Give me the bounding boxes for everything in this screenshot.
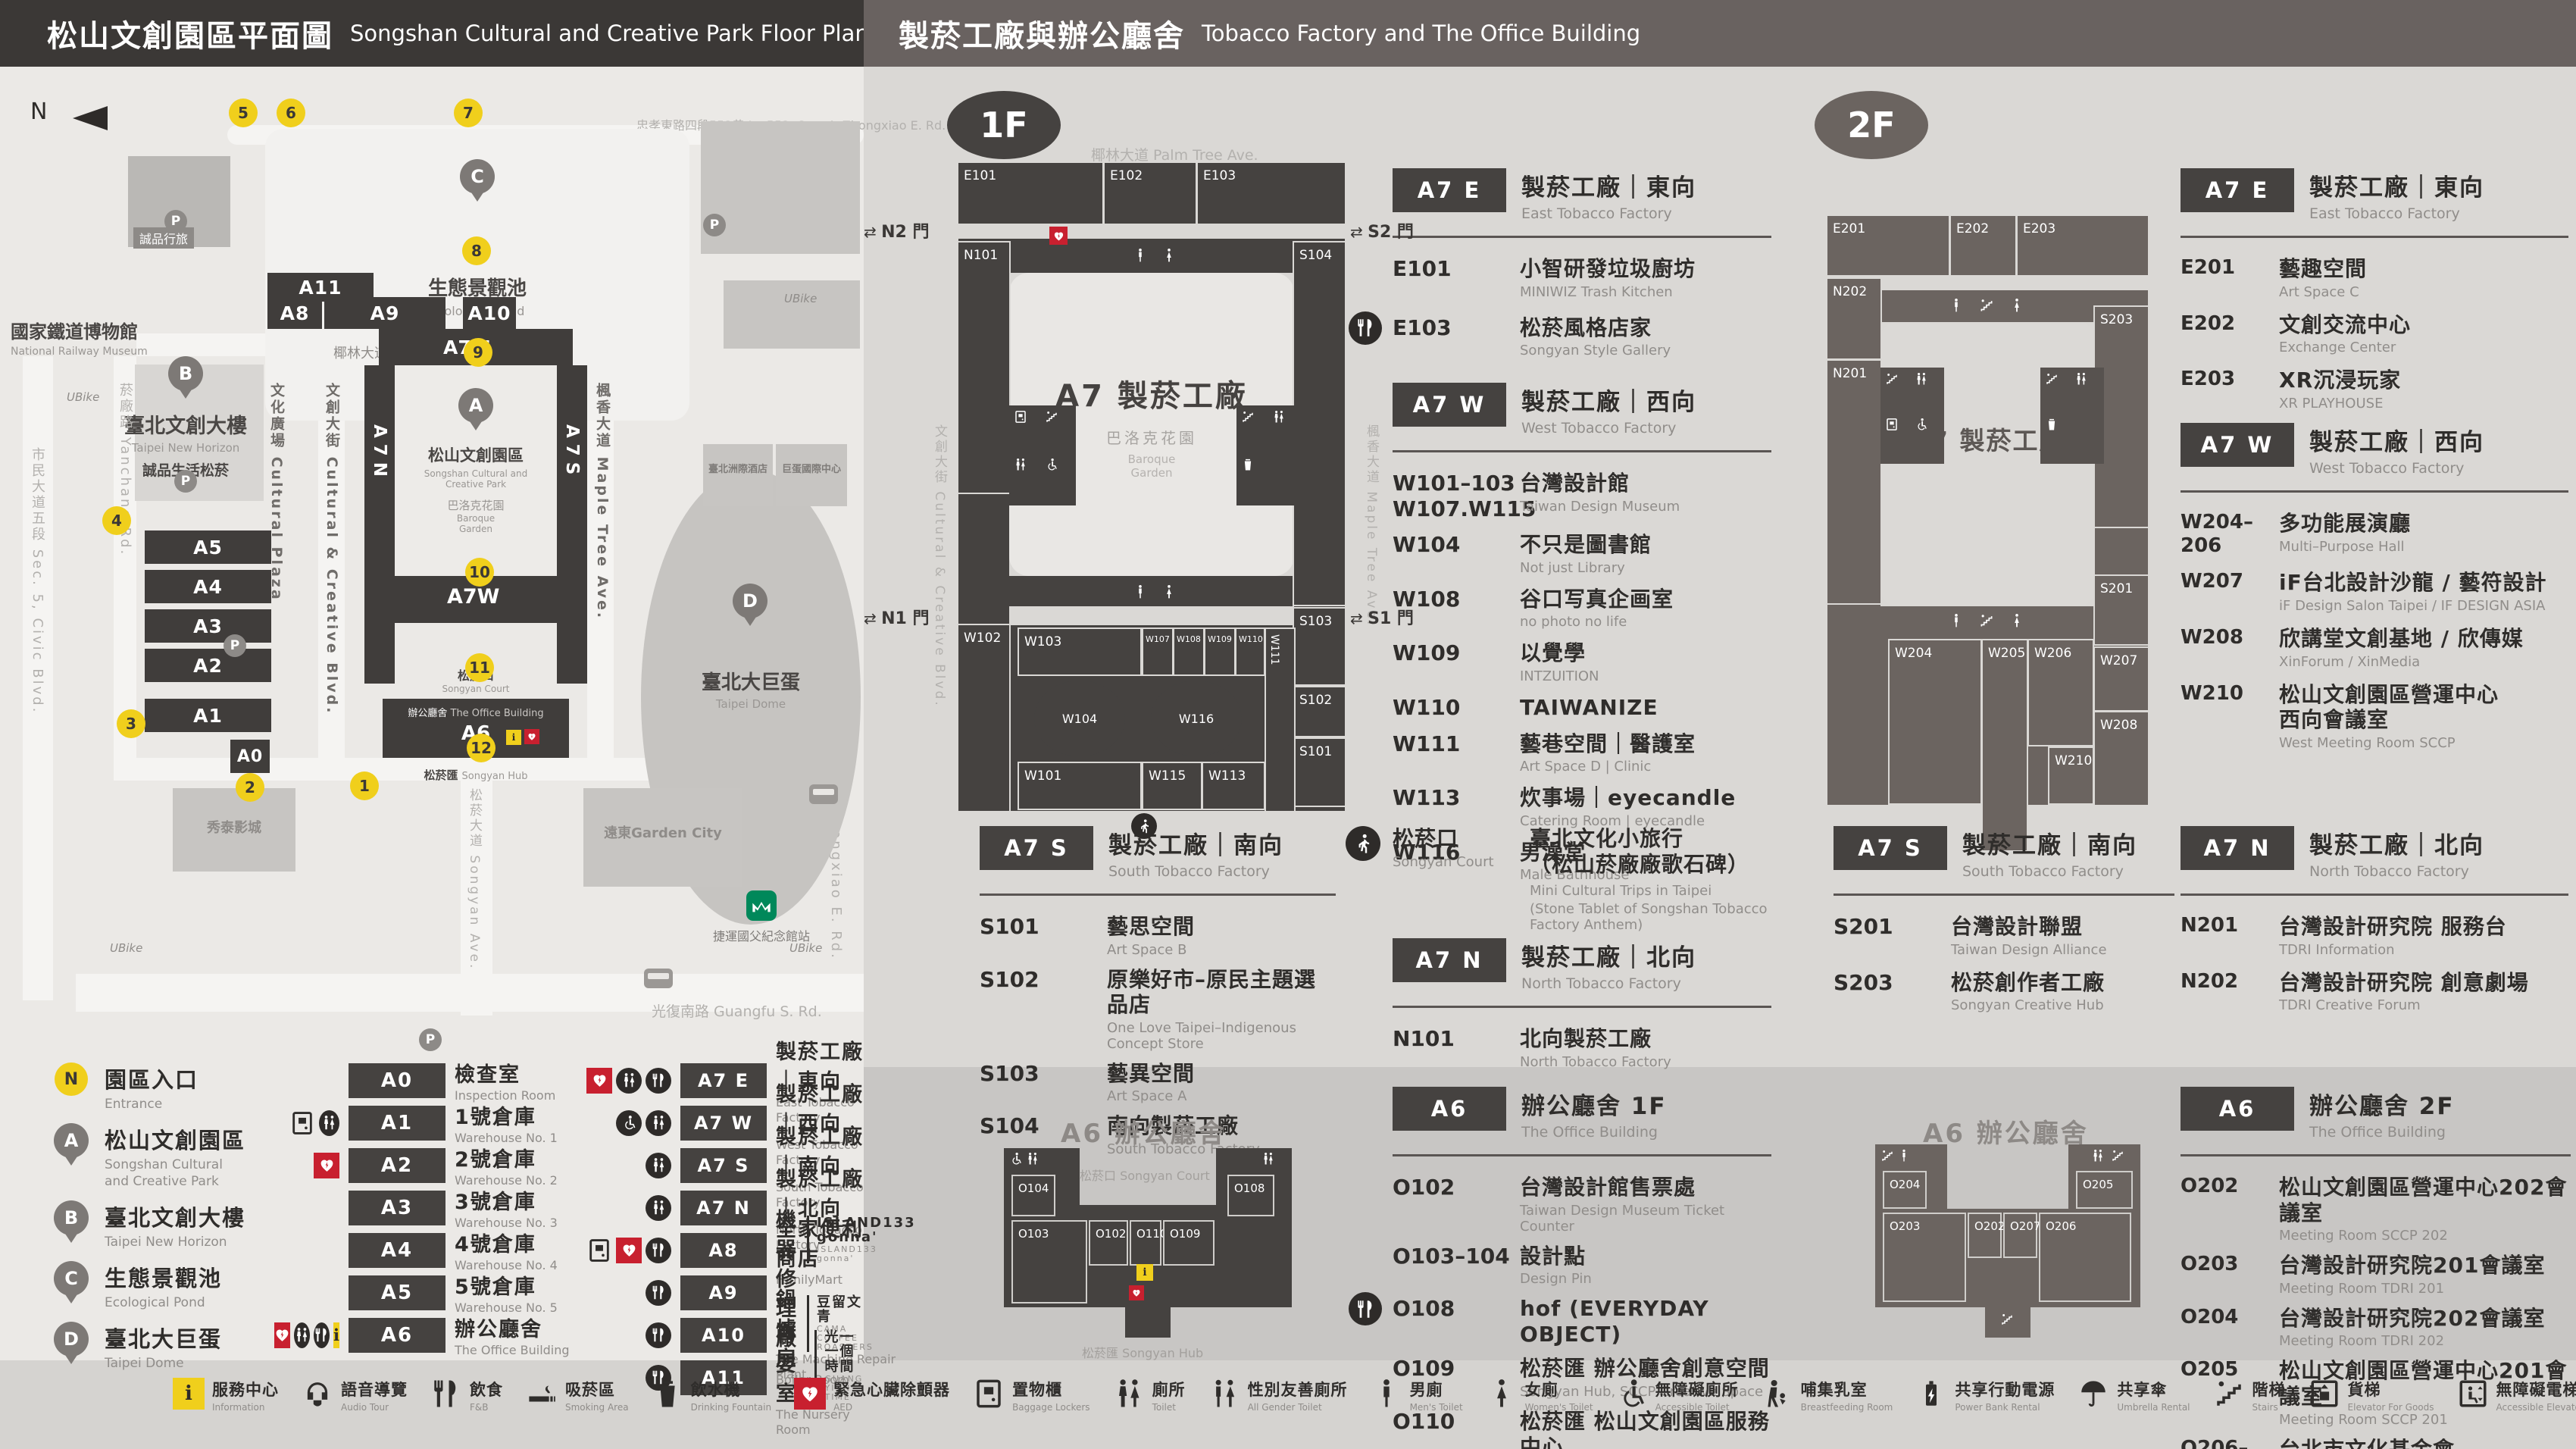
map-room-S201: S201 [2095, 576, 2148, 644]
section-a7w-1f: A7 W 製菸工廠｜西向West Tobacco Factory W101–10… [1393, 383, 1771, 893]
f1-street-ccblvd: 文創大街 Cultural & Creative Blvd. [930, 424, 949, 708]
list-item: W208 欣講堂文創基地 / 欣傳媒 XinForum / XinMedia [2181, 626, 2568, 670]
aed-icon [794, 1378, 826, 1410]
map-pin: C [54, 1261, 89, 1296]
room-code: S101 [980, 914, 1107, 958]
list-item: S203 松菸創作者工廠 Songyan Creative Hub [1834, 970, 2174, 1014]
stairs-icon [1880, 1149, 1894, 1166]
marker-en: Songshan Cultural [105, 1157, 245, 1173]
marker-en: Entrance [105, 1097, 199, 1113]
street-ccblvd: 文創大街 Cultural & Creative Blvd. [322, 383, 342, 715]
room-code: W113 [1393, 785, 1520, 829]
legend-badge: A4 [349, 1233, 445, 1268]
accessible-icon [616, 1110, 642, 1136]
room-code: O204 [2181, 1306, 2279, 1350]
room-code: S102 [980, 967, 1107, 1052]
toilet-icon [2091, 1149, 2105, 1163]
room-name-cjk: 台灣設計研究院 服務台 [2279, 914, 2507, 940]
list-item: W101–103 W107.W115 台灣設計館 Taiwan Design M… [1393, 471, 1771, 521]
room-code: E203 [2181, 368, 2279, 412]
map-room-W208: W208 [2095, 712, 2148, 805]
footer-item: 男廁 Men's Toilet [1371, 1378, 1463, 1413]
a6-2f-map: A6 辦公廳舍 O204O205O203O202O207O206 [1864, 1099, 2152, 1360]
legend-badge: A7 N [680, 1191, 767, 1225]
room-name-cjk: 小智研發垃圾廚坊 [1520, 256, 1696, 282]
footer-icon [1113, 1378, 1145, 1413]
legend-row-icons [289, 1153, 339, 1178]
dome-center-label: 巨蛋國際中心 [776, 461, 847, 475]
right-title-en: Tobacco Factory and The Office Building [1202, 20, 1640, 46]
info-icon: i [506, 730, 521, 745]
accessible-icon [1009, 1152, 1023, 1166]
aed-icon [616, 1238, 642, 1263]
pin-d: D [733, 584, 767, 618]
room-name-cjk: 設計點 [1520, 1244, 1592, 1269]
street-maple: 楓香大道 Maple Tree Ave. [592, 383, 613, 620]
floor-plan-poster: 松山文創園區平面圖 Songshan Cultural and Creative… [0, 0, 2576, 1449]
floor-2f-map: A7 製菸工廠 E201E202E203N202N201S203S201W207… [1827, 216, 2148, 856]
section-a7w-2f: A7 W 製菸工廠｜西向West Tobacco Factory W204–20… [2181, 423, 2568, 763]
floor-1f-badge: 1F [947, 91, 1061, 159]
woman-icon [1486, 1378, 1518, 1410]
map-room-E101: E101 [958, 163, 1102, 224]
room-name-en: Meeting Room TDRI 202 [2279, 1333, 2545, 1349]
room-name-cjk: 松菸創作者工廠 [1951, 970, 2105, 996]
legend-row-icons [582, 1068, 671, 1094]
legend-cjk: 檢查室 [455, 1058, 521, 1088]
room-name-en: Art Space B [1107, 942, 1195, 958]
entrance-marker: N [55, 1062, 88, 1096]
list-item: O108 hof (EVERYDAY OBJECT) [1393, 1296, 1771, 1347]
f1-gate-s2: ⇄ S2 門 [1350, 218, 1414, 243]
marker-cjk: 生態景觀池 [105, 1261, 222, 1293]
street-songyan-ave: 松菸大道 Songyan Ave. [465, 788, 484, 970]
footer-icon [2077, 1378, 2109, 1413]
map-room-W205: W205 [1983, 640, 2027, 850]
legend-badge: A7 W [680, 1106, 767, 1141]
legend-badge: A2 [349, 1148, 445, 1183]
room-name-cjk: 文創交流中心 [2279, 312, 2411, 338]
locker-icon [1885, 418, 1911, 459]
map-room-S101: S101 [1294, 739, 1345, 806]
room-name-cjk: 藝異空間 [1107, 1061, 1195, 1087]
room-name-en: TDRI Information [2279, 942, 2507, 958]
map-wing-a7n-label: A7N [370, 424, 389, 483]
city-block-ne [701, 121, 860, 254]
room-name-cjk-2: 西向會議室 [2279, 707, 2499, 733]
map-room-O109: O109 [1163, 1220, 1215, 1266]
legend-row-icons [582, 1195, 671, 1221]
gate-4: 4 [102, 506, 131, 535]
restaurant-icon [1349, 311, 1382, 345]
room-code: W104 [1393, 532, 1520, 576]
man-icon [1133, 584, 1148, 602]
legend-badge: A1 [349, 1106, 445, 1141]
room-code: O203 [2181, 1253, 2279, 1297]
room-code: O108 [1393, 1296, 1520, 1347]
map-room-W103: W103 [1019, 629, 1140, 674]
room-name-en: Meeting Room SCCP 202 [2279, 1228, 2571, 1244]
section-a7s-2f: A7 S 製菸工廠｜南向South Tobacco Factory S201 台… [1834, 826, 2174, 1025]
map-room-W108: W108 [1174, 629, 1203, 674]
gate-7: 7 [454, 99, 483, 127]
marker-en: Ecological Pond [105, 1295, 222, 1311]
room-name-en: TDRI Creative Forum [2279, 997, 2529, 1013]
footer-item: 語音導覽 Audio Tour [302, 1378, 408, 1413]
footer-icon [1486, 1378, 1518, 1413]
room-code: W110 [1393, 695, 1520, 721]
toilet-icon [2074, 372, 2100, 414]
smoking-icon [526, 1378, 558, 1410]
pin-a: A [458, 388, 493, 423]
footer-icon [430, 1378, 462, 1413]
row-icon [1349, 1292, 1382, 1325]
road-bottom [136, 758, 652, 781]
list-item: S102 原樂好市–原民主題選品店 One Love Taipei–Indige… [980, 967, 1336, 1052]
legend-cjk: 3號倉庫 [455, 1185, 536, 1215]
stairs-icon [2213, 1378, 2245, 1410]
restaurant-icon [646, 1068, 671, 1094]
room-name-cjk: 原樂好市–原民主題選品店 [1107, 967, 1336, 1018]
gate-8: 8 [462, 236, 491, 265]
stairs-icon [1979, 298, 1994, 316]
room-code: E101 [1393, 256, 1520, 300]
marker-cjk: 臺北大巨蛋 [105, 1322, 222, 1354]
marker-symbol: N [53, 1062, 89, 1096]
ubike-label: UBike [67, 390, 99, 404]
stairs-icon [2000, 1313, 2014, 1326]
man-icon [1897, 1149, 1911, 1163]
f2-amenity-box-east [2040, 368, 2104, 464]
gate-1: 1 [350, 771, 379, 800]
map-wing-a7n [364, 365, 395, 684]
legend-marker: N 園區入口 Entrance [53, 1062, 295, 1113]
toilet-icon [1261, 1152, 1275, 1169]
footer-item: 飲食 F&B [430, 1378, 503, 1413]
stairs-icon [2111, 1149, 2124, 1166]
footer-legend: i 服務中心 Information 語音導覽 Audio Tour 飲食 F&… [173, 1378, 2576, 1423]
section-a7e-1f: A7 E 製菸工廠｜東向East Tobacco Factory E101 小智… [1393, 168, 1771, 374]
legend-marker: C 生態景觀池 Ecological Pond [53, 1261, 295, 1311]
room-name-cjk: 多功能展演廳 [2279, 511, 2411, 537]
gate-2: 2 [236, 773, 264, 802]
room-code: O103–104 [1393, 1244, 1520, 1288]
stairs-icon [1979, 298, 1994, 313]
footer-icon [973, 1378, 1005, 1413]
badge-a6: A6 [1393, 1087, 1506, 1131]
map-room-W204: W204 [1890, 640, 1980, 803]
map-room-O108: O108 [1227, 1175, 1274, 1216]
footer-icon [1762, 1378, 1793, 1413]
section-a7n-1f: A7 N 製菸工廠｜北向North Tobacco Factory N101 北… [1393, 938, 1771, 1085]
restaurant-icon [646, 1280, 671, 1306]
restaurant-icon [646, 1322, 671, 1348]
stairs-icon [2045, 372, 2059, 386]
badge-a7e: A7 E [2181, 168, 2294, 212]
list-item: W110 TAIWANIZE [1393, 695, 1771, 721]
f1-gate-s1: ⇄ S1 門 [1350, 605, 1414, 629]
legend-cjk: 4號倉庫 [455, 1228, 536, 1257]
legend-row: i A6 辦公廳舍 The Office Building [289, 1317, 577, 1353]
room-name-cjk: 不只是圖書館 [1520, 532, 1652, 558]
man-icon [1133, 584, 1148, 599]
room-name-cjk: 藝思空間 [1107, 914, 1195, 940]
footer-icon [652, 1378, 683, 1413]
toilet-icon [1272, 410, 1286, 424]
footer-icon [2213, 1378, 2245, 1413]
list-item: O103–104 設計點 Design Pin [1393, 1244, 1771, 1288]
map-room-S102: S102 [1294, 687, 1345, 736]
map-room-W115: W115 [1143, 763, 1201, 809]
locker-icon [973, 1378, 1005, 1410]
map-room-W206: W206 [2029, 640, 2093, 745]
room-name-en: Taiwan Design Museum Ticket Counter [1520, 1203, 1771, 1235]
legend-row: A1 1號倉庫 Warehouse No. 1 [289, 1105, 577, 1141]
drinking-fountain-icon [1241, 458, 1268, 502]
aed-icon [586, 1068, 612, 1094]
map-room-E102: E102 [1105, 163, 1196, 224]
list-item: W210 松山文創園區營運中心 西向會議室 West Meeting Room … [2181, 682, 2568, 751]
badge-a6: A6 [2181, 1087, 2294, 1131]
gate-5: 5 [229, 99, 258, 127]
footer-icon [1208, 1378, 1240, 1413]
room-code: S201 [1834, 914, 1951, 958]
legend-col3: A7 E 製菸工廠｜東向 East Tobacco Factory A7 W 製… [582, 1062, 870, 1402]
map-room-E202: E202 [1951, 216, 2015, 275]
list-item: O102 台灣設計館售票處 Taiwan Design Museum Ticke… [1393, 1175, 1771, 1235]
room-code: W101–103 W107.W115 [1393, 471, 1520, 521]
room-name-en: Exchange Center [2279, 340, 2411, 355]
map-room-W110: W110 [1236, 629, 1264, 674]
toilet-icon [646, 1110, 671, 1136]
legend-row: A3 3號倉庫 Warehouse No. 3 [289, 1190, 577, 1225]
accessible-icon [1915, 418, 1928, 431]
map-pin: A [54, 1123, 89, 1158]
room-name-en: MINIWIZ Trash Kitchen [1520, 284, 1696, 300]
map-park-label: 松山文創園區 Songshan Cultural and Creative Pa… [395, 443, 557, 534]
toilet-icon [1113, 1378, 1145, 1410]
locker-icon [1885, 418, 1899, 431]
parking-icon: P [419, 1028, 442, 1051]
woman-icon [1161, 584, 1177, 602]
room-name-en: One Love Taipei–Indigenous Concept Store [1107, 1020, 1336, 1052]
f1-amenity-box-west [1009, 405, 1076, 505]
room-name-cjk: 松山文創園區營運中心202會議室 [2279, 1175, 2571, 1225]
accessible-icon [1045, 458, 1058, 471]
dome-label: 臺北大巨蛋 Taipei Dome [656, 667, 846, 711]
room-code: N201 [2181, 914, 2279, 958]
room-code: E202 [2181, 312, 2279, 356]
legend-badge: A9 [680, 1275, 767, 1310]
footer-icon [2309, 1378, 2340, 1413]
room-name-en: North Tobacco Factory [1520, 1054, 1671, 1070]
marker-symbol: A [53, 1123, 89, 1158]
list-item: S103 藝異空間 Art Space A [980, 1061, 1336, 1105]
footer-item: 緊急心臟除顫器 AED [794, 1378, 950, 1413]
building-a10: A10 [463, 297, 516, 329]
footer-item: 吸菸區 Smoking Area [526, 1378, 629, 1413]
legend-markers: N 園區入口 Entrance A 松山文創園區 Songshan Cultur… [53, 1062, 295, 1383]
aed-icon [1049, 227, 1068, 245]
locker-icon [586, 1238, 612, 1263]
legend-marker: A 松山文創園區 Songshan Cultural and Creative … [53, 1123, 295, 1190]
aed-icon [1129, 1285, 1144, 1300]
legend-badge: A7 E [680, 1063, 767, 1098]
marker-en: Taipei New Horizon [105, 1235, 245, 1250]
powerbank-icon [1915, 1378, 1947, 1410]
room-name-cjk: iF台北設計沙龍 / 藝符設計 [2279, 570, 2546, 596]
footer-item: 共享傘 Umbrella Rental [2077, 1378, 2190, 1413]
room-name-cjk: 台北市文化基金會 [2279, 1437, 2571, 1449]
footer-item: 廁所 Toilet [1113, 1378, 1186, 1413]
toilet-icon [1026, 1152, 1039, 1166]
toilet-icon [1272, 410, 1299, 454]
ubike-label: UBike [789, 941, 822, 955]
list-item: W108 谷口写真企画室 no photo no life [1393, 587, 1771, 631]
map-room-W113: W113 [1203, 763, 1264, 809]
parking-icon: P [174, 470, 197, 493]
toilet-icon [2074, 372, 2088, 386]
man-icon [1949, 298, 1964, 316]
list-item: N201 台灣設計研究院 服務台 TDRI Information [2181, 914, 2568, 958]
map-room-O110: O110 [1130, 1220, 1161, 1266]
footer-item: 置物櫃 Baggage Lockers [973, 1378, 1090, 1413]
stairs-icon [1045, 410, 1072, 454]
list-item: W204–206 多功能展演廳 Multi–Purpose Hall [2181, 511, 2568, 558]
map-hub-label: 松菸匯 Songyan Hub [395, 767, 557, 783]
room-name-en: Songyan Style Gallery [1520, 343, 1671, 358]
restaurant-icon [430, 1378, 462, 1410]
fountain-icon [1241, 458, 1255, 471]
room-code: W204–206 [2181, 511, 2279, 558]
man-icon [1897, 1149, 1911, 1166]
footer-item: 無障礙電梯 Accessible Elevator [2457, 1378, 2576, 1413]
room-name-cjk: 台灣設計館 [1520, 471, 1680, 496]
map-room-W107: W107 [1143, 629, 1172, 674]
legend-row: A2 2號倉庫 Warehouse No. 2 [289, 1147, 577, 1183]
room-name-cjk: 台灣設計研究院201會議室 [2279, 1253, 2545, 1278]
toilet-icon [1915, 372, 1928, 386]
room-code: N202 [2181, 970, 2279, 1014]
ubike-label: UBike [784, 292, 817, 305]
room-name-en: XR PLAYHOUSE [2279, 396, 2401, 412]
list-item: W113 炊事場｜eyecandle Catering Room | eyeca… [1393, 785, 1771, 829]
stairs-icon [2045, 372, 2071, 414]
marker-cjk: 園區入口 [105, 1062, 199, 1094]
dome-center-block [776, 444, 847, 506]
map-room-N201: N201 [1827, 361, 1880, 603]
legend-row-icons [289, 1110, 339, 1136]
room-code: W210 [2181, 682, 2279, 751]
f2-amenity-box-west [1880, 368, 1944, 464]
room-name-cjk: 炊事場｜eyecandle [1520, 785, 1736, 811]
map-pin: D [54, 1322, 89, 1357]
list-item: E203 XR沉浸玩家 XR PLAYHOUSE [2181, 368, 2568, 412]
legend-marker: B 臺北文創大樓 Taipei New Horizon [53, 1200, 295, 1250]
map-room-O203: O203 [1883, 1213, 1966, 1302]
ubike-label: UBike [110, 941, 142, 955]
map-room-W207: W207 [2095, 648, 2148, 710]
legend-cjk: 辦公廳舍 [455, 1313, 542, 1342]
room-name-en: no photo no life [1520, 614, 1674, 630]
gate-9: 9 [464, 338, 492, 367]
footer-item: i 服務中心 Information [173, 1378, 279, 1413]
room-name-cjk: 藝趣空間 [2279, 256, 2367, 282]
footer-item: 階梯 Stairs [2213, 1378, 2286, 1413]
footer-item: 哺集乳室 Breastfeeding Room [1762, 1378, 1893, 1413]
footer-icon [526, 1378, 558, 1413]
legend-row: A5 5號倉庫 Warehouse No. 5 [289, 1275, 577, 1310]
section-a7e-2f: A7 E 製菸工廠｜東向East Tobacco Factory E201 藝趣… [2181, 168, 2568, 424]
map-room-O104: O104 [1011, 1175, 1055, 1216]
pin-b: B [168, 356, 203, 391]
building-a9: A9 [324, 297, 445, 329]
toilet-icon [1261, 1152, 1275, 1166]
map-room-O102: O102 [1089, 1220, 1128, 1266]
room-name-cjk: 台灣設計聯盟 [1951, 914, 2107, 940]
legend-badge: A3 [349, 1191, 445, 1225]
toilet-icon [1915, 372, 1940, 414]
gate-10: 10 [465, 558, 494, 587]
right-header: 製菸工廠與辦公廳舍 Tobacco Factory and The Office… [864, 0, 2576, 67]
man-icon [1949, 613, 1964, 628]
room-name-en: XinForum / XinMedia [2279, 654, 2524, 670]
legend-row-icons [582, 1110, 671, 1136]
room-name-cjk: XR沉浸玩家 [2279, 368, 2401, 393]
room-name-cjk: 台灣設計研究院202會議室 [2279, 1306, 2545, 1332]
songyan-court-block: 松菸口 Songyan Court 臺北文化小旅行 （松山菸廠廠歌石碑） Min… [1346, 826, 1777, 933]
footer-icon [1616, 1378, 1648, 1413]
room-name-cjk: 台灣設計館售票處 [1520, 1175, 1771, 1200]
woman-icon [1161, 584, 1177, 599]
pin-c: C [460, 159, 495, 194]
gate-12: 12 [467, 734, 496, 762]
badge-a7e: A7 E [1393, 168, 1506, 212]
fountain-icon [652, 1378, 683, 1410]
f1-gate-n1: ⇄ N1 門 [864, 605, 930, 629]
list-item: W207 iF台北設計沙龍 / 藝符設計 iF Design Salon Tai… [2181, 570, 2568, 614]
accessible-icon [1915, 418, 1940, 459]
row-icon [1349, 311, 1382, 345]
street-civic: 市民大道五段 Sec. 5, Civic Blvd. [27, 447, 47, 714]
legend-badge: A7 S [680, 1148, 767, 1183]
marker-symbol: D [53, 1322, 89, 1357]
marker-symbol: B [53, 1200, 89, 1235]
room-name-en: Meeting Room TDRI 201 [2279, 1281, 2545, 1297]
legend-row: A4 4號倉庫 Warehouse No. 4 [289, 1232, 577, 1268]
allgender-icon [1208, 1378, 1240, 1410]
intercontinental-block [703, 444, 773, 506]
room-name-en: Taiwan Design Alliance [1951, 942, 2107, 958]
stairs-icon [1979, 613, 1994, 628]
map-room-W104: W104 [1034, 681, 1125, 756]
man-icon [1949, 613, 1964, 631]
map-room-E201: E201 [1827, 216, 1949, 275]
right-title-cjk: 製菸工廠與辦公廳舍 [899, 11, 1185, 55]
gate-3: 3 [117, 709, 145, 738]
accessible-icon [1045, 458, 1072, 502]
fountain-icon [2045, 418, 2059, 431]
f1-gate-n2: ⇄ N2 門 [864, 218, 930, 243]
building-a1: A1 [145, 699, 271, 732]
map-room-N101: N101 [958, 243, 1009, 493]
building-a0: A0 [230, 740, 270, 773]
locker-icon [1014, 410, 1041, 454]
left-header: 松山文創園區平面圖 Songshan Cultural and Creative… [0, 0, 911, 67]
parking-icon: P [164, 210, 187, 233]
map-room-E103: E103 [1198, 163, 1345, 224]
list-item: E202 文創交流中心 Exchange Center [2181, 312, 2568, 356]
